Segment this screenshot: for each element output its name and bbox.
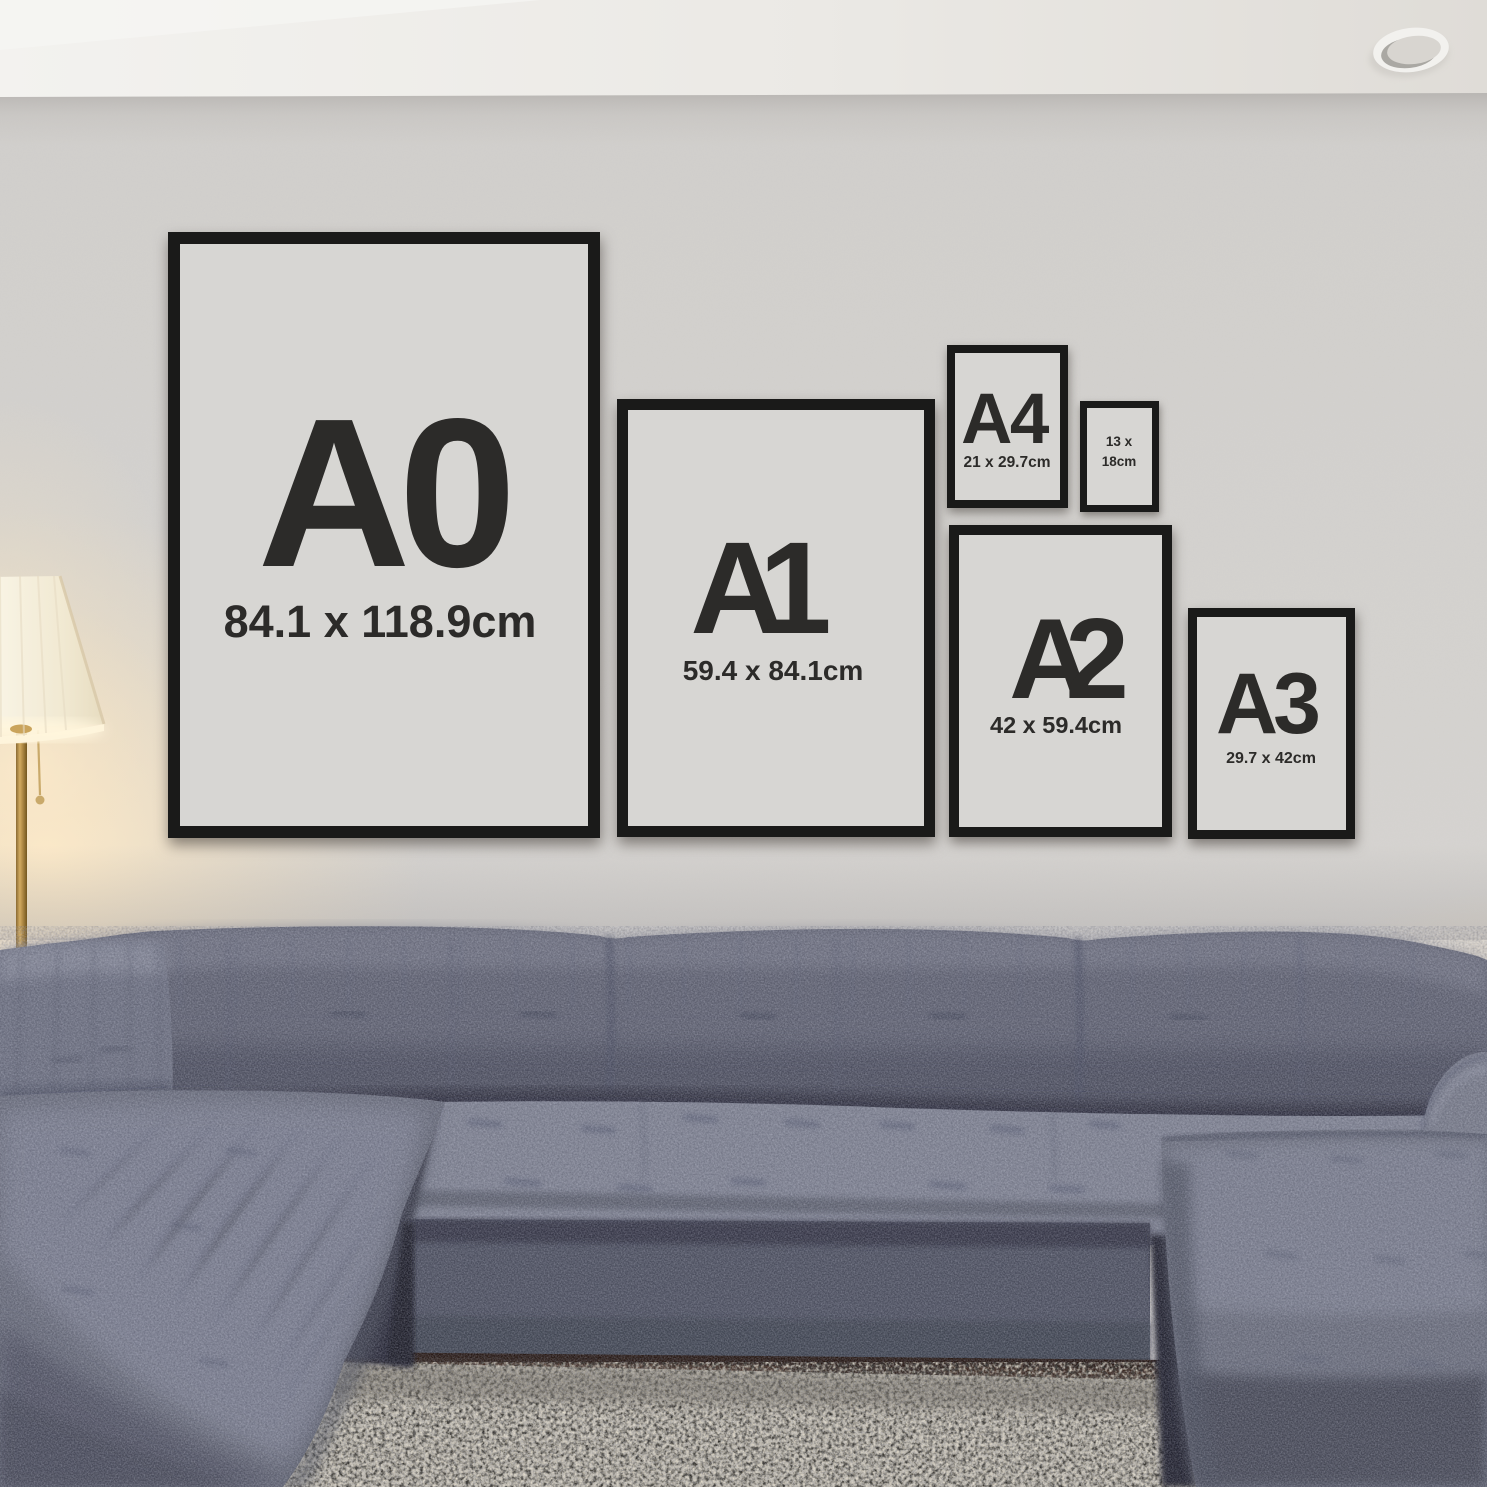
svg-text:42 x 59.4cm: 42 x 59.4cm (990, 712, 1122, 738)
svg-text:84.1 x 118.9cm: 84.1 x 118.9cm (224, 596, 537, 647)
svg-text:29.7 x 42cm: 29.7 x 42cm (1226, 750, 1316, 767)
svg-text:59.4 x 84.1cm: 59.4 x 84.1cm (683, 655, 864, 686)
svg-text:21 x 29.7cm: 21 x 29.7cm (963, 454, 1050, 471)
svg-text:A4: A4 (961, 380, 1050, 459)
svg-text:18cm: 18cm (1102, 454, 1137, 469)
svg-text:A3: A3 (1216, 656, 1318, 752)
svg-text:13 x: 13 x (1106, 434, 1133, 449)
svg-text:A0: A0 (257, 374, 508, 611)
